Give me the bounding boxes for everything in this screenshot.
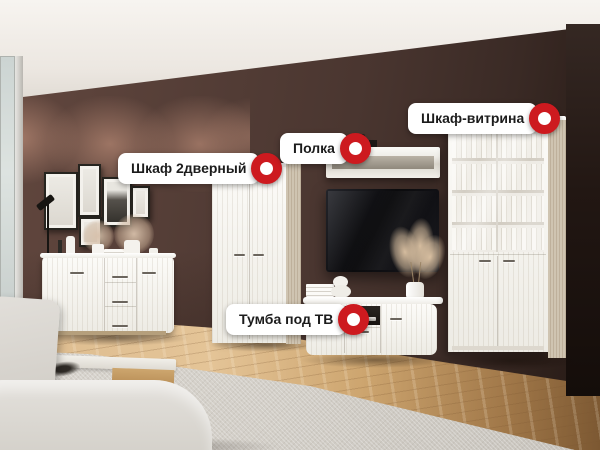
chest-plinth — [50, 331, 166, 335]
chest-gap — [105, 306, 136, 307]
chest-of-drawers — [42, 256, 174, 333]
callout-tv-stand[interactable]: Тумба под ТВ — [226, 304, 369, 335]
chest-gap — [136, 258, 137, 331]
cabinet-side-panel — [548, 120, 566, 358]
picture-frame — [78, 164, 101, 217]
target-marker-icon[interactable] — [340, 133, 371, 164]
callout-label: Полка — [280, 133, 348, 163]
target-marker-icon[interactable] — [251, 153, 282, 184]
callout-shelf[interactable]: Полка — [280, 133, 371, 164]
callout-wardrobe-2door[interactable]: Шкаф 2дверный — [118, 153, 282, 184]
chest-gap — [104, 258, 105, 331]
callout-label: Тумба под ТВ — [226, 304, 346, 334]
cabinet-handle — [503, 260, 515, 262]
display-cabinet — [448, 124, 548, 352]
chest-handle — [142, 272, 156, 274]
chest-top — [40, 253, 176, 258]
glass-reflection — [452, 128, 544, 252]
sofa-seat — [0, 380, 212, 450]
chest-handle — [70, 272, 84, 274]
callout-label: Шкаф-витрина — [408, 103, 537, 133]
tv-stand-gap — [380, 306, 381, 353]
wardrobe-handle — [234, 254, 245, 256]
cabinet-plinth — [452, 346, 544, 350]
chest-handle — [112, 276, 128, 278]
chest-handle — [112, 301, 128, 303]
frame-art — [83, 169, 96, 212]
decor-books — [306, 284, 334, 297]
cabinet-glass-section — [452, 128, 544, 252]
callout-label: Шкаф 2дверный — [118, 153, 259, 183]
chest-gap — [105, 282, 136, 283]
wardrobe-handle — [253, 254, 264, 256]
chest-handle — [112, 325, 128, 327]
cabinet-door-gap — [497, 256, 498, 350]
cabinet-gap — [450, 254, 546, 255]
callout-display-cabinet[interactable]: Шкаф-витрина — [408, 103, 560, 134]
target-marker-icon[interactable] — [529, 103, 560, 134]
cabinet-handle — [479, 260, 491, 262]
tv-stand-top — [303, 297, 443, 304]
annotated-room-photo: Шкаф 2дверный Полка Шкаф-витрина Тумба п… — [0, 0, 600, 450]
target-marker-icon[interactable] — [338, 304, 369, 335]
frame-art — [136, 191, 145, 214]
dark-corner-wall — [566, 24, 600, 396]
tv-stand-handle — [390, 318, 402, 320]
